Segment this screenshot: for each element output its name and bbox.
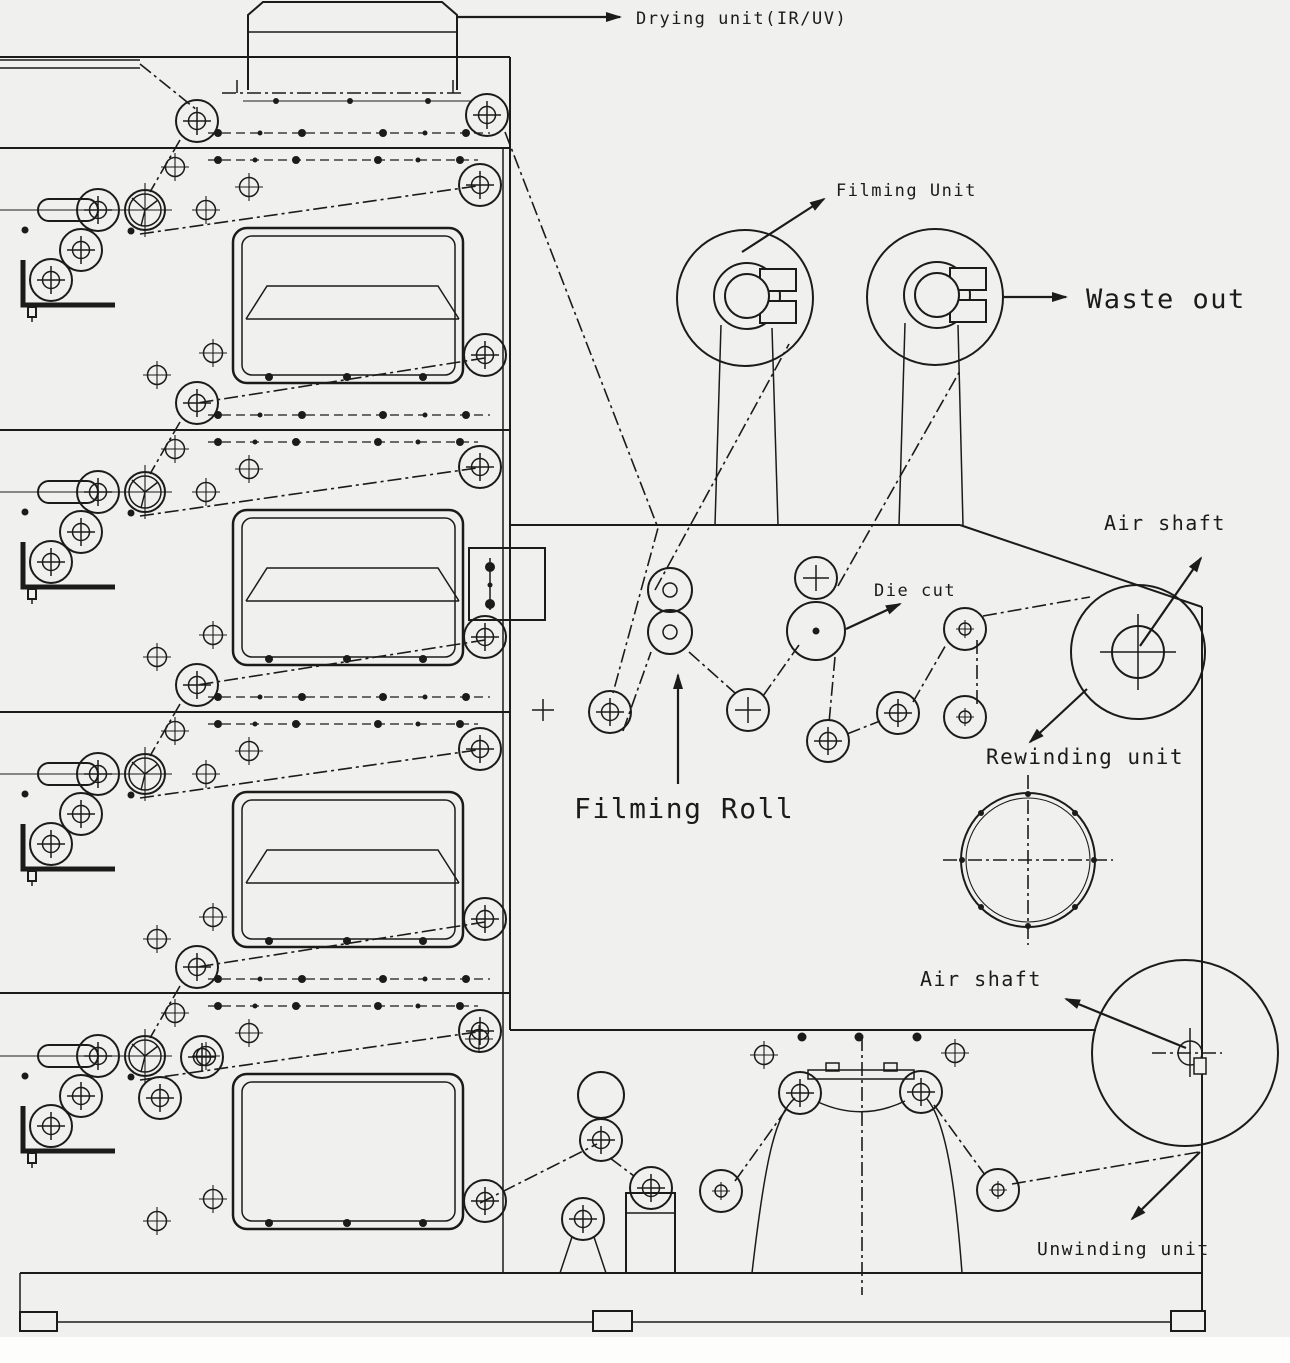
scan-margin bbox=[0, 1337, 1290, 1363]
waste-out-label: Waste out bbox=[1086, 284, 1246, 315]
filming-unit-label: Filming Unit bbox=[836, 181, 977, 201]
paper-background bbox=[0, 0, 1290, 1363]
die-cut-label: Die cut bbox=[874, 581, 956, 601]
rewinding-unit-label: Rewinding unit bbox=[986, 745, 1184, 769]
filming-roll-label: Filming Roll bbox=[574, 792, 794, 825]
machine-diagram: Drying unit(IR/UV) bbox=[0, 0, 1290, 1363]
drying-unit-label: Drying unit(IR/UV) bbox=[636, 9, 847, 29]
air-shaft-top-label: Air shaft bbox=[1104, 511, 1226, 535]
air-shaft-bottom-label: Air shaft bbox=[920, 967, 1042, 991]
unwinding-unit-label: Unwinding unit bbox=[1037, 1239, 1210, 1260]
machine-foot bbox=[20, 1312, 57, 1331]
machine-foot bbox=[593, 1311, 632, 1331]
machine-foot bbox=[1171, 1311, 1205, 1331]
